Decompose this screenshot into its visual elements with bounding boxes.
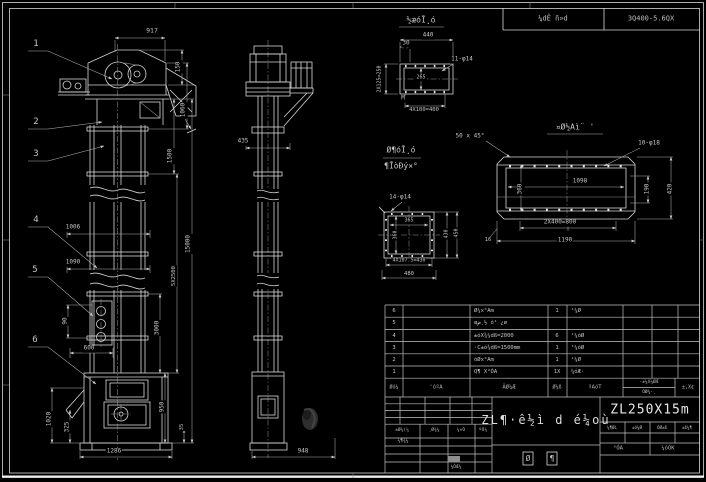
- bom-header-weight-top: ·±¼X¼ØÆ: [640, 381, 659, 386]
- balloon-leaders: [28, 51, 112, 384]
- cad-drawing-canvas: ¼dÊ ñ»d 3Q400-5.6QX Øó¼ 'óºA ÃØ¼Æ Ø¼ß ªA…: [0, 0, 706, 482]
- sheets-left-label: °ÓA: [613, 446, 623, 452]
- titleblock-stamp-cell: [448, 456, 460, 462]
- sheet-frame: [2, 2, 704, 478]
- tb-small-h1: ±ó¼Ø: [632, 425, 642, 429]
- bom-header-qty: Ø¼ß: [552, 386, 561, 391]
- detail-flange-view: [378, 158, 459, 280]
- titleblock-left-bottom: ¼ÓÆ¼: [451, 465, 462, 470]
- bom-header-material: ªAóT: [588, 385, 601, 391]
- drawing-title: ZL¶·ê½ì d é¼où: [481, 414, 610, 426]
- tb-small-h3: ±ß¼¶: [682, 425, 692, 429]
- tb-small-h2: ÓØ±ß: [657, 425, 667, 429]
- bom-header-seq: Øó¼: [389, 386, 398, 391]
- bom-header-name: ÃØ¼Æ: [502, 385, 515, 391]
- stage-char-1: Ø: [526, 455, 531, 463]
- top-strip-cell-2: 3Q400-5.6QX: [628, 16, 674, 23]
- titleblock-left-h0: ±Ø¼(¼: [395, 429, 409, 434]
- bom-header-weight-bottom: ÓØ¾·¸: [642, 390, 656, 395]
- titleblock-left-h1: ¸Ø¾¼: [429, 429, 440, 434]
- drawing-code: ZL250X15m: [610, 404, 689, 417]
- titleblock-left-h2: ¼×Ó: [457, 429, 465, 434]
- drawing-geometry: [0, 0, 706, 482]
- side-elevation-view: [246, 40, 335, 459]
- stage-char-2: ¶: [550, 455, 555, 463]
- bom-header-code: 'óºA: [429, 385, 442, 391]
- bom-header-remark: ±,X¢: [682, 386, 694, 391]
- titleblock-left-h3: ºÓ¼: [479, 429, 487, 434]
- front-view-dimensions: [50, 38, 194, 459]
- sheets-right-label: ¼óÓK: [661, 446, 674, 452]
- titleblock-left-row2: ¼¶¾¼: [398, 440, 409, 445]
- tb-small-h0: ¼¶ØL: [607, 425, 617, 429]
- top-strip-cell-1: ¼dÊ ñ»d: [538, 16, 568, 23]
- detail-plate-view: [486, 134, 673, 244]
- detail-channel-view: [384, 27, 458, 108]
- front-elevation-view: [58, 44, 196, 460]
